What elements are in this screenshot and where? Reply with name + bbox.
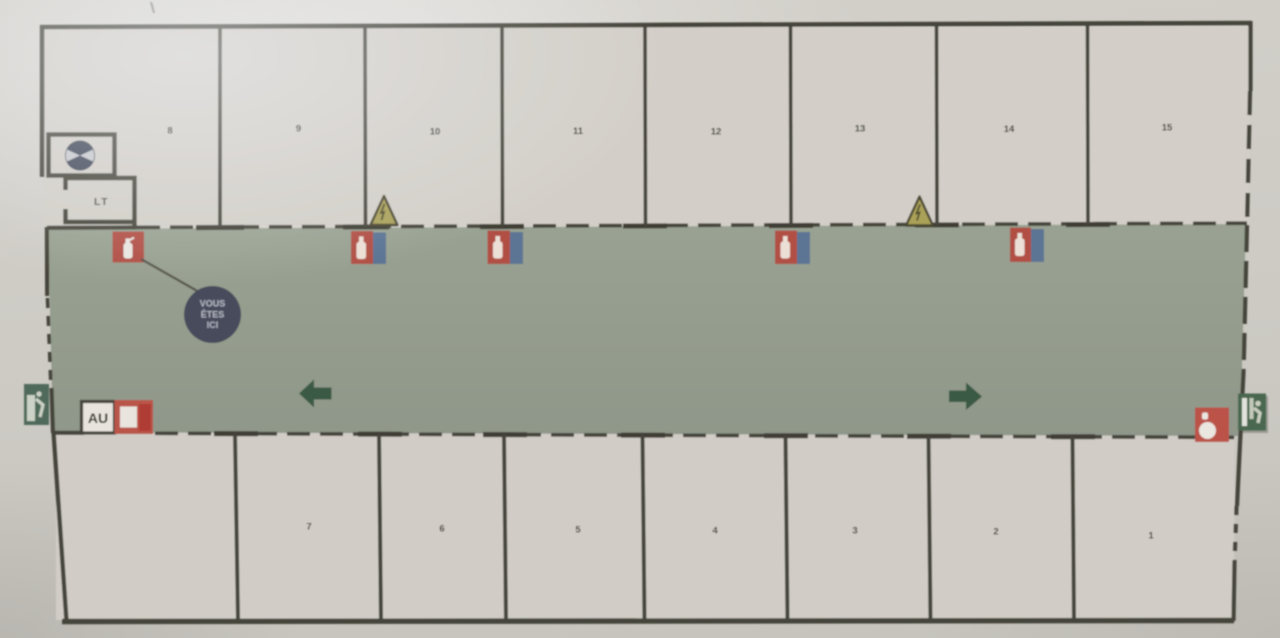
svg-text:15: 15	[1162, 123, 1173, 134]
svg-text:7: 7	[306, 522, 311, 533]
svg-text:14: 14	[1004, 124, 1015, 135]
svg-text:VOUS: VOUS	[200, 299, 226, 309]
svg-text:5: 5	[575, 525, 581, 536]
svg-text:ÊTES: ÊTES	[201, 309, 225, 320]
svg-text:AU: AU	[88, 410, 108, 426]
svg-text:12: 12	[711, 127, 722, 138]
svg-text:6: 6	[439, 524, 444, 535]
svg-text:ICI: ICI	[207, 320, 219, 330]
svg-text:1: 1	[1148, 531, 1154, 542]
svg-text:3: 3	[852, 526, 857, 537]
svg-text:13: 13	[855, 124, 866, 135]
svg-text:4: 4	[712, 526, 718, 537]
svg-text:2: 2	[993, 527, 998, 538]
